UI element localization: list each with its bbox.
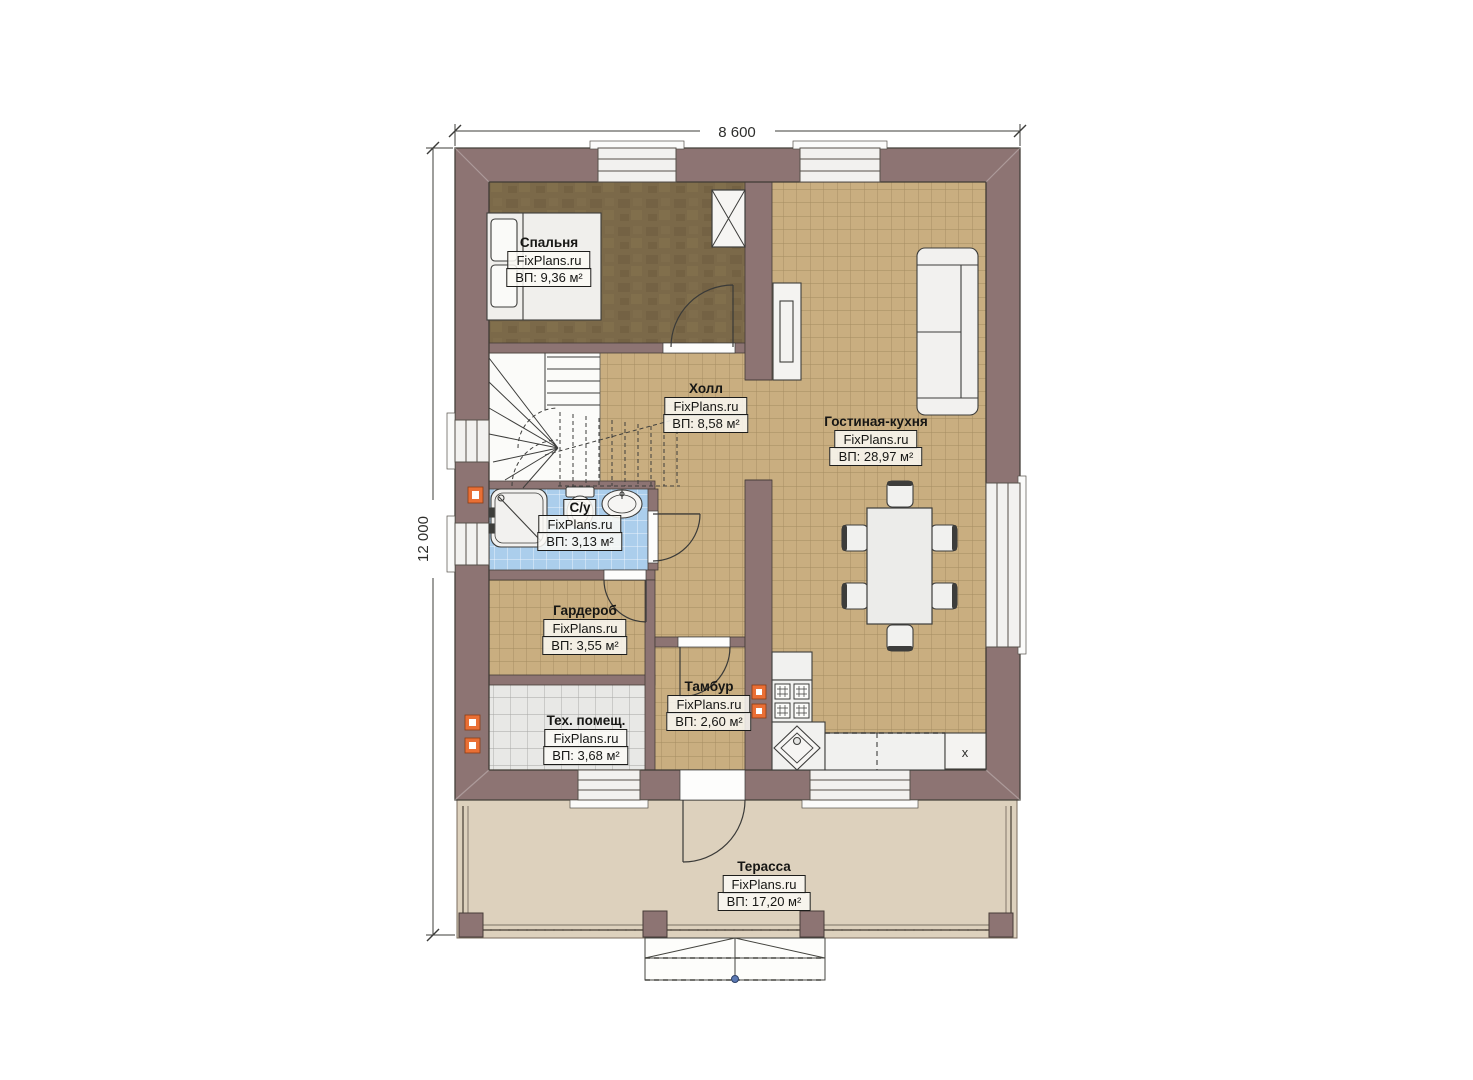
wardrobe-door-opening bbox=[604, 570, 646, 580]
wardrobe-floor bbox=[489, 580, 645, 675]
terrace-post bbox=[800, 911, 824, 937]
window-right-living bbox=[986, 483, 1020, 647]
chair bbox=[931, 525, 957, 551]
washbasin bbox=[602, 490, 642, 518]
chair bbox=[887, 481, 913, 507]
kitchen-counter-small bbox=[772, 652, 812, 680]
window-left-stairs bbox=[455, 420, 489, 462]
window-top-living bbox=[800, 148, 880, 182]
passage-opening bbox=[745, 380, 772, 480]
chair bbox=[887, 625, 913, 651]
dimension-height-label: 12 000 bbox=[415, 516, 432, 562]
terrace-post bbox=[643, 911, 667, 937]
wall-wardrobe-tech bbox=[489, 675, 655, 685]
floor-plan-page: x 8 600 bbox=[0, 0, 1473, 1080]
wall-living-left-lower bbox=[745, 480, 772, 770]
tv-unit bbox=[773, 283, 801, 380]
window-top-bedroom bbox=[598, 148, 676, 182]
toilet bbox=[566, 487, 594, 528]
fridge-label: x bbox=[962, 745, 969, 760]
sofa bbox=[917, 248, 978, 415]
bathroom-door-opening bbox=[648, 511, 658, 563]
dimension-width-label: 8 600 bbox=[718, 124, 756, 141]
window-bottom-tech bbox=[578, 770, 640, 800]
chair bbox=[931, 583, 957, 609]
entrance-door-opening bbox=[680, 770, 745, 800]
entry-steps bbox=[645, 938, 825, 983]
bedroom-door-opening bbox=[663, 343, 735, 353]
chair bbox=[842, 525, 868, 551]
terrace-post bbox=[989, 913, 1013, 937]
tambour-floor bbox=[655, 647, 745, 770]
terrace-post bbox=[459, 913, 483, 937]
terrace-area bbox=[457, 800, 1017, 938]
wall-living-left-upper bbox=[745, 182, 772, 380]
tambour-door-opening bbox=[678, 637, 730, 647]
kitchen-counter bbox=[825, 733, 945, 770]
chair bbox=[842, 583, 868, 609]
dimension-top: 8 600 bbox=[449, 124, 1026, 146]
terrace-floor bbox=[457, 800, 1017, 938]
window-left-bathroom bbox=[455, 523, 489, 565]
dining-table bbox=[867, 508, 932, 624]
bed bbox=[487, 213, 601, 320]
window-bottom-kitchen bbox=[810, 770, 910, 800]
steps-reference-dot bbox=[732, 976, 739, 983]
vent-shaft bbox=[712, 190, 745, 247]
tech-room-floor bbox=[489, 685, 645, 770]
floor-plan-drawing: x 8 600 bbox=[0, 0, 1473, 1080]
